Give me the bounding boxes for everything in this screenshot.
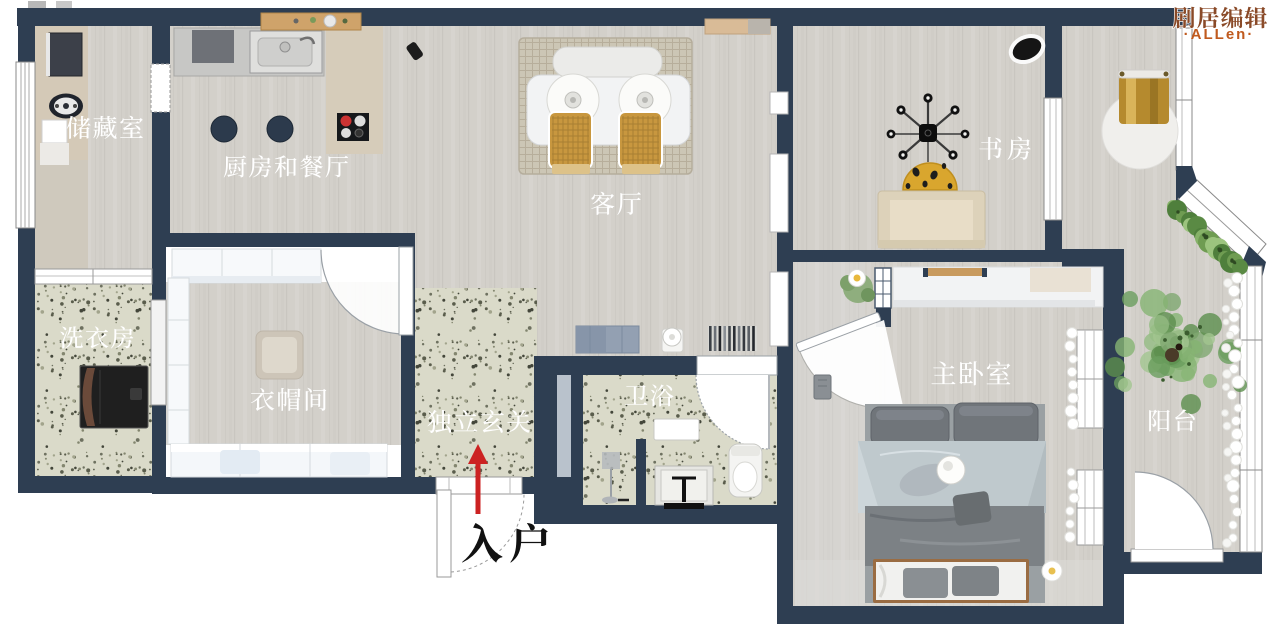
svg-text:·ALLen·: ·ALLen·	[1184, 26, 1255, 43]
